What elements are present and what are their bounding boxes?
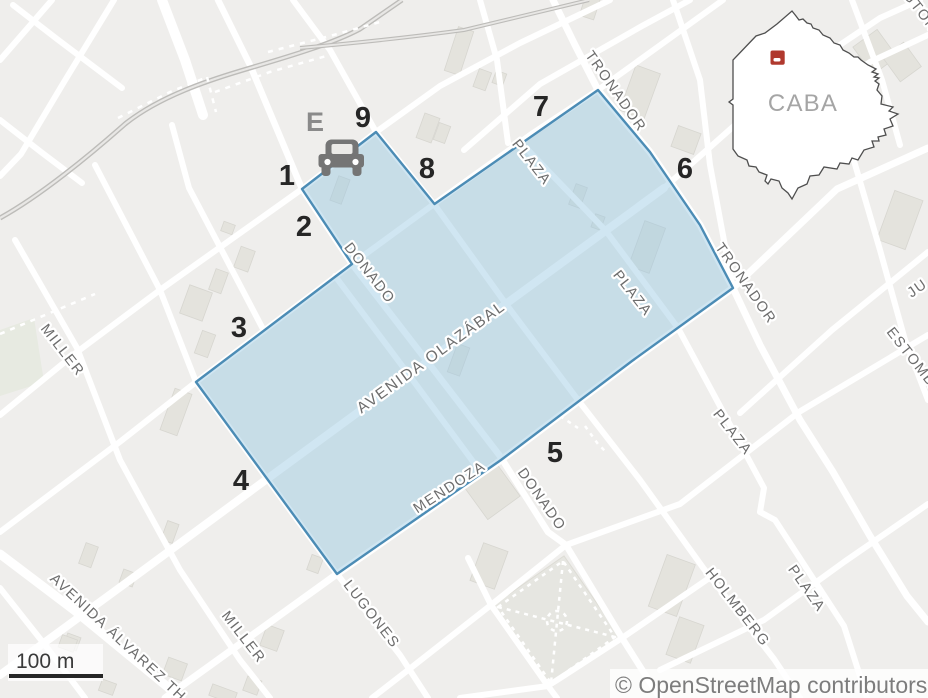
svg-text:4: 4 xyxy=(233,465,249,497)
svg-text:5: 5 xyxy=(547,437,563,469)
svg-text:7: 7 xyxy=(533,91,549,123)
svg-text:100 m: 100 m xyxy=(16,650,74,673)
svg-text:3: 3 xyxy=(231,312,247,344)
svg-text:1: 1 xyxy=(279,160,295,192)
svg-text:9: 9 xyxy=(355,102,371,134)
svg-text:6: 6 xyxy=(677,153,693,185)
svg-text:8: 8 xyxy=(419,153,435,185)
svg-text:CABA: CABA xyxy=(768,90,838,117)
svg-text:© OpenStreetMap contributors: © OpenStreetMap contributors xyxy=(615,672,927,698)
svg-text:2: 2 xyxy=(296,211,312,243)
svg-text:E: E xyxy=(306,107,324,137)
